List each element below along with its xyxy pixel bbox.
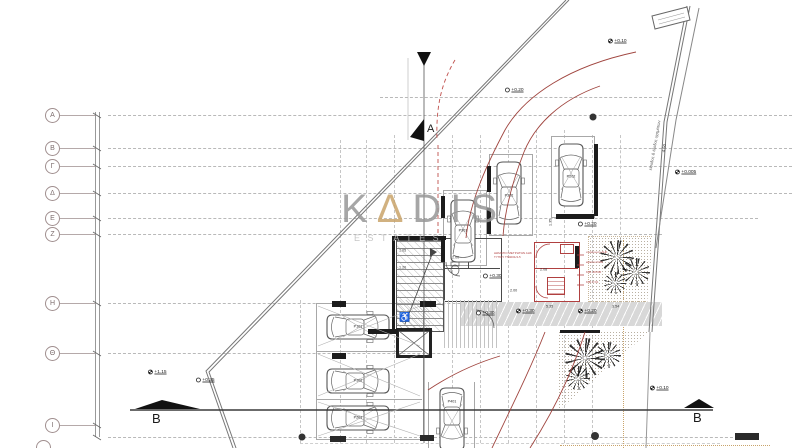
meter-room-line2: ΤΥΠΟΥ TS4001/4-5 — [494, 256, 532, 260]
wall — [487, 166, 491, 192]
driveway-label: είσοδος & έξοδος οχημάτων — [649, 120, 662, 170]
grid-line-h — [108, 234, 662, 235]
wall — [735, 433, 759, 440]
level-marker: +0.10 — [608, 39, 627, 44]
grid-line-v — [300, 300, 301, 443]
stall-edge — [474, 382, 475, 448]
section-label-b-left: B — [152, 411, 161, 426]
meter-cabinet — [560, 244, 574, 254]
benchmark-icon — [578, 222, 583, 227]
wall — [332, 353, 346, 359]
meter-side-label: κιβώτιο ΚΟΑ — [586, 261, 603, 265]
level-marker: +0.30 — [476, 311, 495, 316]
wall — [441, 240, 445, 262]
terrace-hatch — [444, 300, 500, 348]
meter-room-title: ΔΩΜΑΤΙΟ ΜΕΤΡΗΤΩΝ ΑΗΚ ΤΥΠΟΥ TS4001/4-5 — [494, 252, 532, 260]
grid-line-h — [108, 218, 758, 219]
grid-bubble-A: Α — [45, 108, 60, 123]
grid-leader — [59, 353, 95, 354]
level-marker: +0.005 — [675, 170, 696, 175]
level-marker: +0.35 — [196, 378, 215, 383]
grid-leader — [59, 115, 95, 116]
grid-bubble-E: Ε — [45, 211, 60, 226]
wall — [420, 301, 436, 307]
tree-icon — [595, 342, 621, 368]
tree-icon — [566, 366, 590, 390]
grid-line-h — [108, 166, 792, 167]
grid-leader — [59, 193, 95, 194]
grid-bubble-TH: Θ — [45, 346, 60, 361]
benchmark-icon — [578, 309, 583, 314]
meter-side-label: σωλήνωση ΑΗΚ — [586, 251, 608, 255]
meter-cabinet — [547, 277, 565, 295]
grid-leader — [59, 303, 95, 304]
benchmark-icon — [196, 378, 201, 383]
meter-side-label: ΚΙΒ. ΚΥΑ — [586, 281, 598, 285]
dimension-text: 2.00 — [452, 256, 459, 260]
grid-leader — [59, 166, 95, 167]
wall — [332, 301, 346, 307]
grid-bubble-H: Η — [45, 296, 60, 311]
benchmark-icon — [505, 88, 510, 93]
wall — [560, 330, 600, 333]
grid-leader — [59, 148, 95, 149]
benchmark-icon — [483, 274, 488, 279]
elevator-shaft — [396, 328, 432, 358]
wall — [594, 144, 598, 216]
parking-label: P201 — [354, 416, 363, 420]
dimension-text: 1.20 — [399, 266, 406, 270]
parking-label: P301 — [459, 229, 468, 233]
car-p302 — [493, 160, 525, 226]
benchmark-icon — [650, 386, 655, 391]
dim-chain-line — [99, 112, 100, 437]
wall — [368, 329, 398, 334]
dim-chain-line — [95, 112, 96, 437]
level-marker: +0.20 — [505, 88, 524, 93]
grid-leader — [59, 234, 95, 235]
wall — [420, 435, 434, 441]
dimension-text: 5.35 — [546, 305, 553, 309]
grid-line-h — [108, 115, 792, 116]
car-p401 — [436, 386, 468, 448]
wall — [556, 214, 594, 219]
benchmark-icon — [476, 311, 481, 316]
wall — [392, 236, 446, 240]
wheelchair-icon: ♿ — [399, 312, 410, 323]
meter-side-label: ΚΙΒ. 40Χ40 — [586, 271, 601, 275]
level-marker: +0.20 — [578, 309, 597, 314]
section-label-a: A — [427, 123, 434, 135]
dimension-text: 2.08 — [540, 268, 547, 272]
grid-bubble-D: Δ — [45, 186, 60, 201]
grid-bubble-G: Γ — [45, 159, 60, 174]
level-marker: +1.15 — [148, 370, 167, 375]
wall — [392, 238, 395, 334]
grid-line-h — [108, 148, 792, 149]
grid-line-h — [380, 97, 662, 98]
floor-plan-sheet: ♿ Α Β Γ Δ Ε Ζ Η Θ Ι — [0, 0, 796, 448]
grid-line-h — [300, 443, 720, 444]
parking-label: P101 — [354, 325, 363, 329]
parking-label: P202 — [567, 175, 576, 179]
grid-line-v — [620, 135, 621, 240]
wall — [330, 436, 346, 442]
benchmark-icon — [675, 170, 680, 175]
grid-line-h-tan — [560, 445, 770, 446]
grid-bubble-B: Β — [45, 141, 60, 156]
wall — [441, 196, 445, 218]
benchmark-icon — [148, 370, 153, 375]
parking-label: P102 — [354, 379, 363, 383]
level-marker: +0.20 — [578, 222, 597, 227]
benchmark-icon — [608, 39, 613, 44]
level-marker: +0.30 — [516, 309, 535, 314]
dimension-text: 3.54 — [612, 305, 619, 309]
dimension-text: 2.00 — [510, 289, 517, 293]
section-label-b-right: B — [693, 410, 702, 425]
grid-leader — [59, 425, 95, 426]
tree-icon — [622, 258, 650, 286]
room-partition — [444, 268, 500, 269]
dimension-text: 1.35 — [549, 219, 553, 226]
wall — [487, 208, 491, 234]
level-marker: +0.10 — [650, 386, 669, 391]
dimension-text: 1.05 — [399, 249, 406, 253]
tree-icon — [604, 272, 626, 294]
benchmark-icon — [516, 309, 521, 314]
parking-label: P302 — [505, 194, 514, 198]
grid-bubble-Z: Ζ — [45, 227, 60, 242]
level-marker: +0.30 — [483, 274, 502, 279]
grid-leader — [59, 218, 95, 219]
parking-label: P401 — [448, 400, 457, 404]
dimension-text: 4.50 — [662, 144, 668, 153]
stall-divider — [316, 399, 422, 400]
grid-bubble-partial — [36, 440, 51, 448]
grid-bubble-I: Ι — [45, 418, 60, 433]
